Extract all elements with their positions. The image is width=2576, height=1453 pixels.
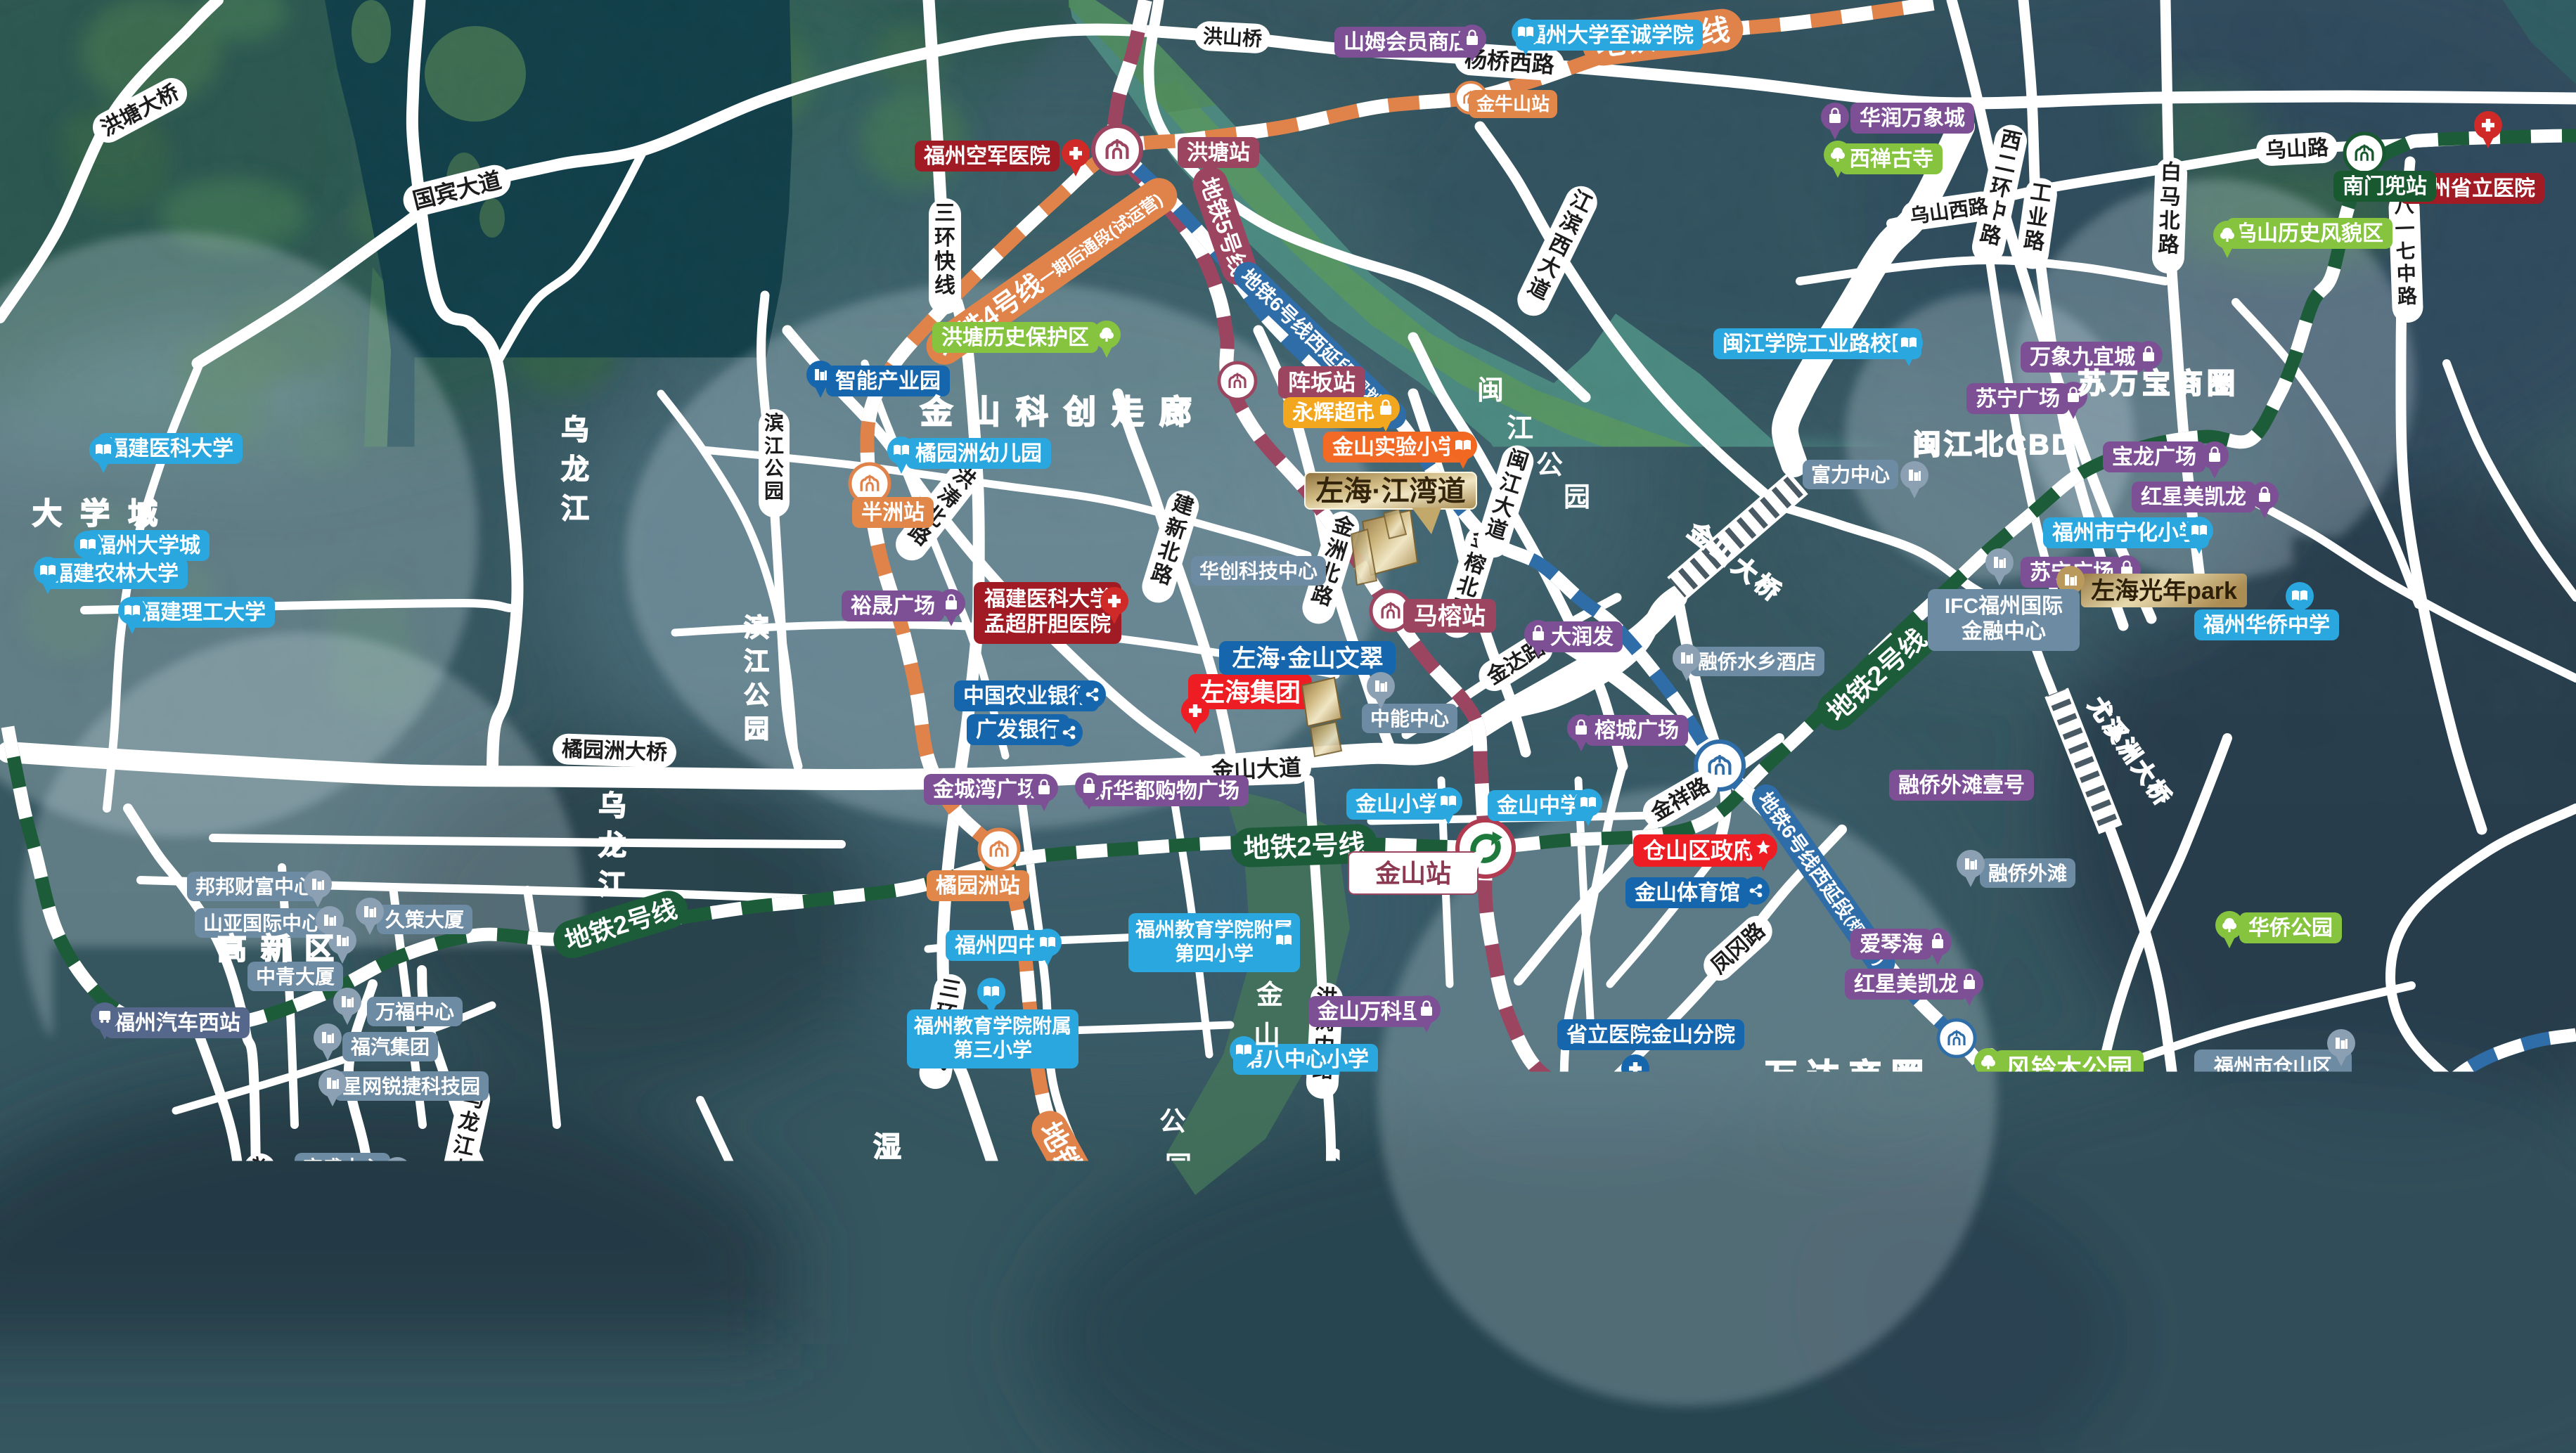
svg-text:滨: 滨 (764, 412, 784, 434)
svg-text:3、项目周边环境、道路交通状况、文体商业设施等信息的采集截止: 3、项目周边环境、道路交通状况、文体商业设施等信息的采集截止于2025年8月15… (50, 1334, 966, 1348)
svg-text:橘园洲大桥: 橘园洲大桥 (561, 737, 667, 764)
svg-text:福州四中: 福州四中 (954, 934, 1039, 957)
svg-text:华创科技中心: 华创科技中心 (1199, 560, 1318, 582)
svg-text:第八中心小学: 第八中心小学 (1242, 1047, 1369, 1071)
svg-text:园: 园 (1165, 1152, 1192, 1182)
svg-text:金山万科里: 金山万科里 (1317, 1000, 1423, 1023)
svg-text:金山站: 金山站 (1374, 859, 1451, 888)
svg-text:园: 园 (764, 480, 784, 502)
svg-text:路: 路 (2397, 285, 2418, 307)
svg-text:仓山欢乐颂: 仓山欢乐颂 (1490, 1191, 1595, 1214)
svg-text:第四中心小学: 第四中心小学 (2214, 1078, 2332, 1101)
svg-text:苏万宝商圈: 苏万宝商圈 (2078, 368, 2239, 399)
svg-text:环: 环 (934, 226, 955, 250)
svg-text:金: 金 (1256, 980, 1284, 1010)
svg-text:公: 公 (1536, 451, 1563, 480)
svg-text:马榕站: 马榕站 (1414, 602, 1486, 630)
svg-text:滨: 滨 (744, 613, 769, 642)
svg-text:福建农林大学: 福建农林大学 (51, 562, 179, 586)
svg-text:融侨水乡酒店: 融侨水乡酒店 (1698, 651, 1816, 673)
svg-text:园: 园 (744, 714, 769, 743)
svg-text:三: 三 (934, 202, 955, 225)
svg-text:红星美凯龙: 红星美凯龙 (1854, 972, 1959, 996)
svg-text:地铁2号线: 地铁2号线 (1243, 830, 1366, 864)
svg-text:橘园洲幼儿园: 橘园洲幼儿园 (915, 442, 1042, 465)
svg-text:金山实验小学: 金山实验小学 (1332, 435, 1459, 459)
svg-text:4、地铁2/5/4(前通段)号线已开通，4号线后通段试运营，: 4、地铁2/5/4(前通段)号线已开通，4号线后通段试运营，4号线二期、6号线规… (50, 1364, 770, 1378)
svg-text:情况；: 情况； (70, 1349, 108, 1363)
svg-text:一: 一 (2395, 218, 2415, 240)
svg-text:新华都购物广场: 新华都购物广场 (1092, 780, 1239, 803)
svg-text:福州大学至诚学院: 福州大学至诚学院 (1524, 23, 1694, 47)
svg-text:闽江学院工业路校区: 闽江学院工业路校区 (1722, 332, 1912, 356)
svg-text:阵坂站: 阵坂站 (1288, 370, 1355, 395)
svg-text:大润发: 大润发 (1550, 625, 1614, 649)
svg-text:华侨公园: 华侨公园 (2248, 917, 2333, 940)
svg-text:地: 地 (873, 1168, 901, 1199)
svg-text:园: 园 (873, 1241, 901, 1272)
svg-text:省立医院金山分院: 省立医院金山分院 (1566, 1023, 1735, 1047)
svg-text:三: 三 (938, 976, 962, 1003)
svg-text:1、本区域示意图已做简化处理，非按比例制作，仅作项目位置示意: 1、本区域示意图已做简化处理，非按比例制作，仅作项目位置示意。因受制作比例和材质… (50, 1290, 967, 1304)
svg-text:裕晟广场: 裕晟广场 (851, 595, 935, 618)
svg-text:福州市宁化小学: 福州市宁化小学 (2052, 521, 2200, 545)
svg-text:8、制作日期2025年8月15日，有效期截止至2025年12: 8、制作日期2025年8月15日，有效期截止至2025年12月31日。一切未列举… (50, 1438, 614, 1452)
svg-text:金山小学: 金山小学 (1355, 792, 1440, 816)
svg-text:左海光年park: 左海光年park (2091, 578, 2237, 605)
svg-text:公: 公 (873, 1205, 901, 1236)
svg-text:线: 线 (934, 274, 955, 297)
svg-text:智能产业园: 智能产业园 (835, 370, 941, 393)
svg-text:邦邦财富中心: 邦邦财富中心 (195, 875, 314, 898)
svg-text:江: 江 (744, 647, 769, 676)
svg-text:闽: 闽 (1477, 376, 1504, 406)
svg-text:路: 路 (2158, 233, 2180, 257)
svg-text:龙: 龙 (598, 830, 626, 861)
svg-text:山姆会员商店: 山姆会员商店 (1344, 31, 1470, 54)
svg-text:白: 白 (2160, 161, 2182, 185)
svg-text:第三小学: 第三小学 (953, 1038, 1032, 1061)
svg-text:洪山桥: 洪山桥 (1202, 25, 1263, 50)
svg-text:福州大学城: 福州大学城 (94, 534, 200, 557)
svg-text:6、在不违反法律法规、合同约定的条件下，开发商有权对宣传内容: 6、在不违反法律法规、合同约定的条件下，开发商有权对宣传内容作出最新调整，不做另… (50, 1408, 586, 1422)
svg-text:左海·金山文翠: 左海·金山文翠 (1232, 645, 1383, 672)
svg-text:福建医科大学: 福建医科大学 (106, 437, 233, 460)
svg-text:工: 工 (2029, 180, 2053, 206)
svg-text:乌山历史风貌区: 乌山历史风貌区 (2236, 222, 2383, 245)
svg-text:湿: 湿 (873, 1132, 901, 1163)
svg-text:万福中心: 万福中心 (375, 1001, 454, 1023)
svg-text:金山体育馆: 金山体育馆 (1634, 881, 1740, 905)
svg-text:业: 业 (2026, 205, 2049, 231)
svg-text:爱琴海: 爱琴海 (1860, 933, 1923, 956)
svg-text:浦上大道站: 浦上大道站 (1745, 1156, 1843, 1179)
svg-text:苏宁广场: 苏宁广场 (1976, 387, 2060, 411)
svg-text:广发银行: 广发银行 (976, 718, 1060, 742)
svg-text:园: 园 (1564, 483, 1590, 512)
svg-text:福建理工大学: 福建理工大学 (139, 600, 266, 624)
svg-text:马: 马 (2159, 186, 2181, 209)
svg-text:福州华侨中学: 福州华侨中学 (2203, 613, 2330, 637)
svg-text:红星美凯龙: 红星美凯龙 (2141, 485, 2246, 509)
svg-text:中能中心: 中能中心 (1370, 708, 1449, 730)
svg-text:大学城: 大学城 (32, 497, 176, 530)
svg-text:IFC福州国际: IFC福州国际 (1945, 595, 2063, 618)
svg-text:半洲站: 半洲站 (861, 501, 925, 524)
svg-text:中: 中 (2396, 263, 2416, 285)
svg-text:福建医科大学: 福建医科大学 (984, 587, 1111, 611)
svg-text:敬请留意。城市发展过程中可能会存在部分道路、项目及配套发生变: 敬请留意。城市发展过程中可能会存在部分道路、项目及配套发生变化或未标示的情况，实… (70, 1305, 723, 1319)
svg-text:星网锐捷科技园: 星网锐捷科技园 (342, 1075, 480, 1097)
svg-text:金融中心: 金融中心 (1961, 619, 2046, 643)
svg-text:橘园洲站: 橘园洲站 (936, 874, 1020, 898)
svg-text:西禅古寺: 西禅古寺 (1849, 148, 1933, 171)
svg-text:凤岗里站: 凤岗里站 (1546, 1111, 1625, 1133)
svg-text:闽江北CBD: 闽江北CBD (1913, 430, 2075, 460)
svg-text:公: 公 (744, 680, 769, 709)
svg-text:仓山区政府: 仓山区政府 (1643, 838, 1756, 863)
svg-text:孟超肝胆医院: 孟超肝胆医院 (984, 612, 1111, 636)
svg-text:金山科创走廊: 金山科创走廊 (920, 394, 1207, 430)
svg-text:乌山路: 乌山路 (2265, 136, 2330, 163)
svg-text:福州空军医院: 福州空军医院 (923, 144, 1050, 168)
svg-text:福州教育学院附属: 福州教育学院附属 (913, 1014, 1071, 1037)
svg-text:金山中学: 金山中学 (1496, 794, 1581, 818)
svg-text:宏盛中心: 宏盛中心 (303, 1156, 382, 1179)
svg-text:风铃木公园: 风铃木公园 (2006, 1054, 2132, 1083)
svg-text:7、本项目推广名为“左海·金山文翠”，备案名为“金山文翠公馆: 7、本项目推广名为“左海·金山文翠”，备案名为“金山文翠公馆”；开发企业为：“福… (50, 1423, 893, 1437)
svg-text:福州汽车西站: 福州汽车西站 (113, 1011, 240, 1035)
svg-text:富力中心: 富力中心 (1811, 463, 1890, 486)
svg-text:洪塘站: 洪塘站 (1187, 141, 1250, 164)
svg-text:位设置、开学（班）时间、招生条件、收费标准及招生区域存在调整: 位设置、开学（班）时间、招生条件、收费标准及招生区域存在调整的可能，应以政府教育… (70, 1393, 809, 1407)
svg-text:快: 快 (934, 250, 956, 273)
svg-text:路: 路 (2022, 228, 2047, 254)
svg-text:江: 江 (764, 435, 784, 457)
svg-text:洪塘历史保护区: 洪塘历史保护区 (941, 325, 1089, 349)
svg-text:公: 公 (764, 458, 784, 479)
svg-text:高新区: 高新区 (217, 932, 348, 965)
svg-text:左海集团: 左海集团 (1199, 678, 1301, 706)
svg-text:第四小学: 第四小学 (1175, 942, 1254, 964)
svg-text:中国农业银行: 中国农业银行 (963, 685, 1090, 708)
svg-text:中青大厦: 中青大厦 (256, 966, 335, 988)
svg-text:江: 江 (561, 493, 589, 524)
svg-text:榕城广场: 榕城广场 (1595, 718, 1679, 742)
svg-text:左海·江湾道: 左海·江湾道 (1315, 475, 1465, 507)
svg-text:金牛山站: 金牛山站 (1476, 93, 1550, 115)
svg-text:公: 公 (1159, 1107, 1186, 1137)
svg-text:乌: 乌 (561, 415, 589, 446)
svg-text:融侨外滩壹号: 融侨外滩壹号 (1898, 774, 2025, 797)
svg-text:福州市仓山区: 福州市仓山区 (2213, 1054, 2332, 1077)
svg-text:江: 江 (1507, 414, 1533, 444)
svg-text:华润万象城: 华润万象城 (1860, 106, 1965, 130)
svg-text:万象九宜城: 万象九宜城 (2030, 345, 2135, 369)
svg-text:福汽集团: 福汽集团 (350, 1036, 430, 1058)
svg-text:万达商圈: 万达商圈 (1765, 1057, 1933, 1094)
svg-text:龙: 龙 (561, 454, 589, 485)
svg-text:江: 江 (598, 870, 626, 900)
svg-text:5、本区位示意图宣传对项目周边幼儿园、学校等教育资源的介绍旨: 5、本区位示意图宣传对项目周边幼儿园、学校等教育资源的介绍旨在提供相关信息，并不… (50, 1378, 967, 1393)
svg-text:永辉超市: 永辉超市 (1292, 401, 1377, 425)
svg-text:乌: 乌 (598, 791, 626, 822)
svg-text:七: 七 (2395, 240, 2416, 263)
svg-text:山: 山 (1254, 1021, 1280, 1051)
svg-text:宝龙广场: 宝龙广场 (2112, 445, 2196, 469)
svg-text:南门兜站: 南门兜站 (2343, 175, 2427, 198)
svg-text:金城湾广场: 金城湾广场 (932, 777, 1038, 801)
svg-text:万达广场: 万达广场 (1689, 1099, 1774, 1123)
svg-text:山亚国际中心: 山亚国际中心 (203, 912, 321, 934)
svg-text:北: 北 (2158, 209, 2180, 233)
svg-text:2、买卖双方权利义务以《商品房买卖合同》及其相关附件为准；: 2、买卖双方权利义务以《商品房买卖合同》及其相关附件为准； (50, 1319, 401, 1333)
svg-text:融侨外滩: 融侨外滩 (1988, 862, 2067, 884)
svg-text:久策大厦: 久策大厦 (385, 908, 464, 931)
svg-text:福州教育学院附属: 福州教育学院附属 (1135, 918, 1293, 941)
